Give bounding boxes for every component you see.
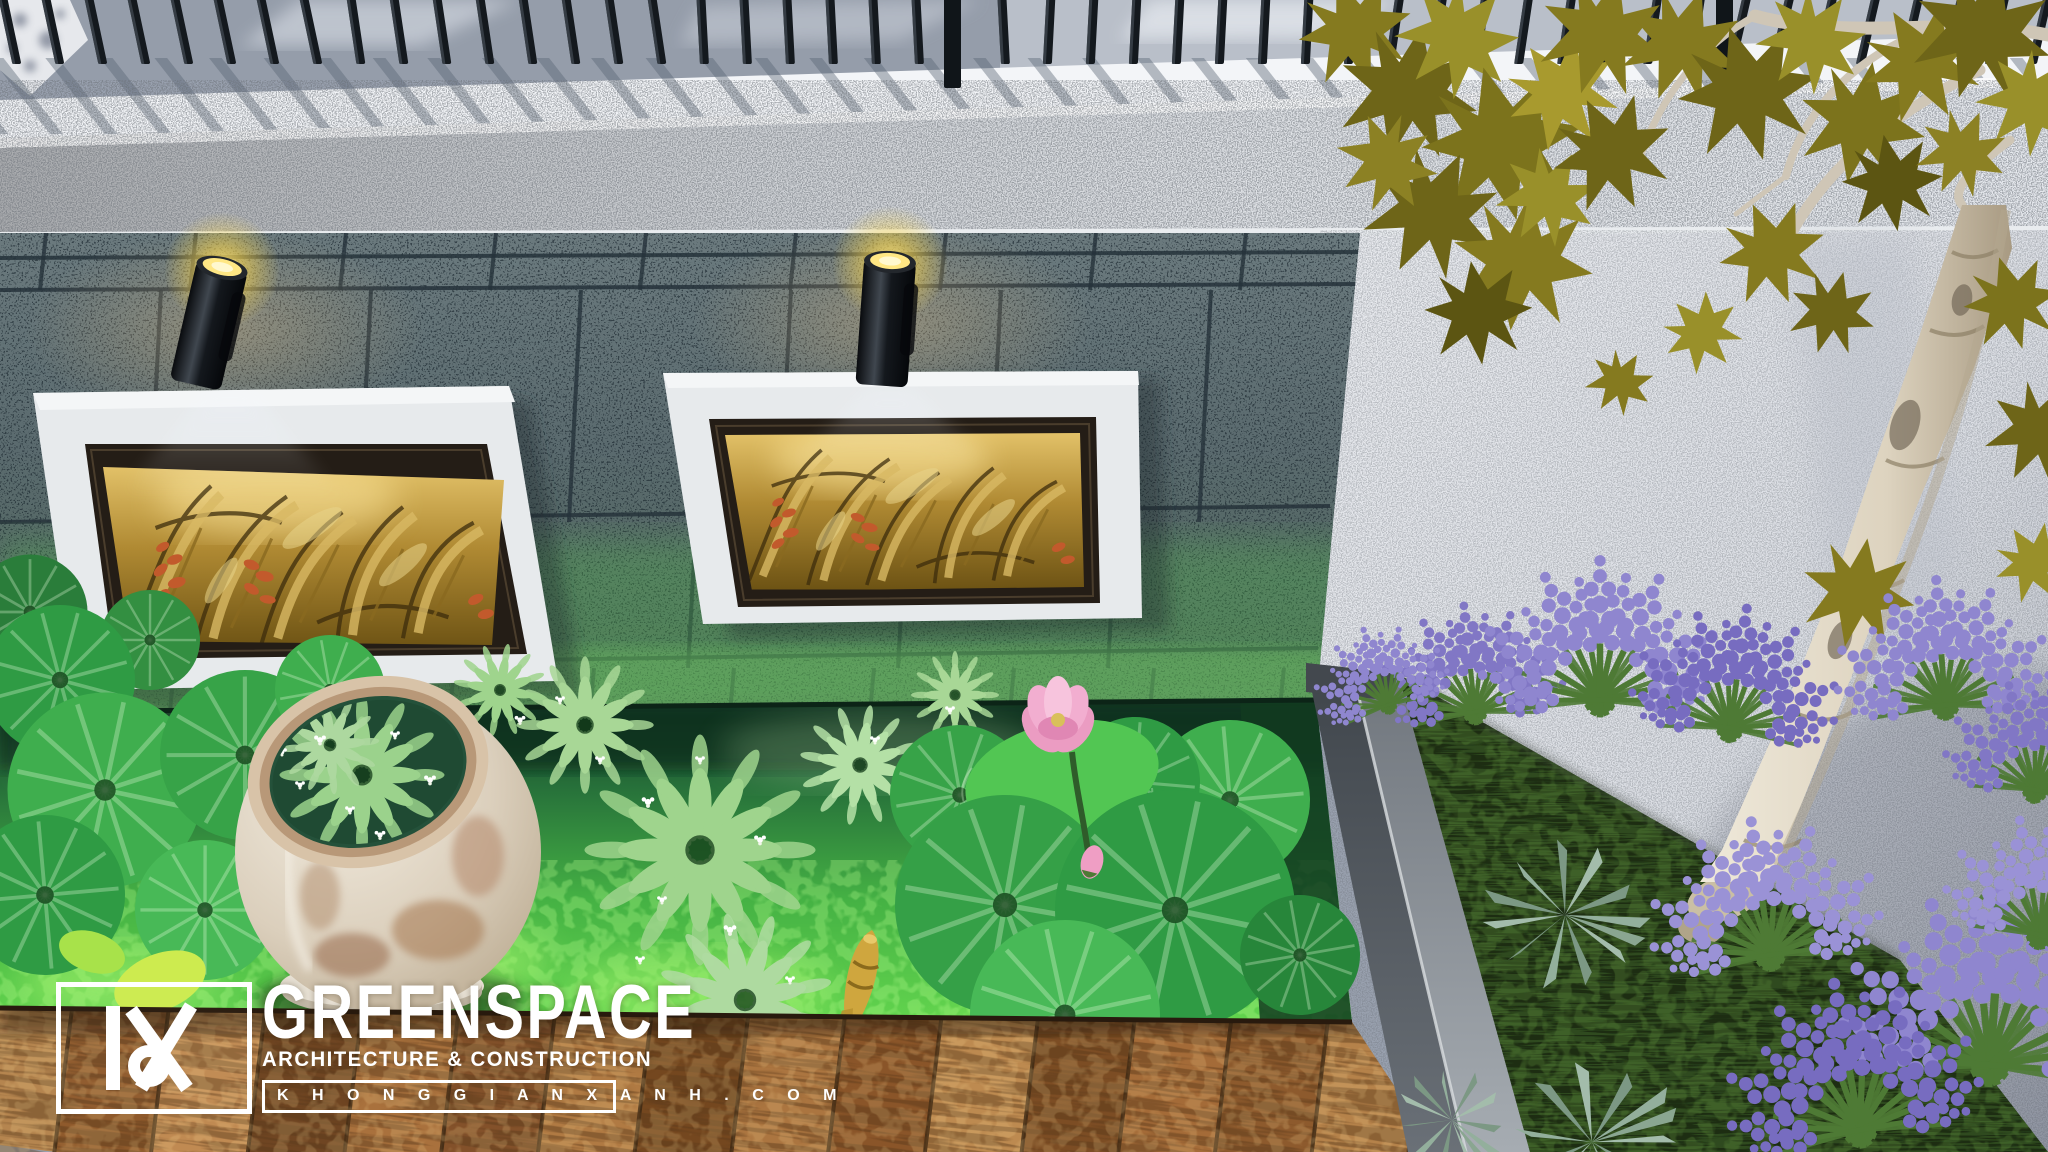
brand-monogram <box>56 982 252 1114</box>
website-box: K H O N G G I A N X A N H . C O M <box>262 1080 616 1113</box>
architectural-render: GREENSPACE ARCHITECTURE & CONSTRUCTION K… <box>0 0 2048 1152</box>
watermark-logo: GREENSPACE ARCHITECTURE & CONSTRUCTION K… <box>56 982 818 1114</box>
railing-post <box>944 0 961 88</box>
brand-name: GREENSPACE <box>262 982 696 1044</box>
brand-tagline: ARCHITECTURE & CONSTRUCTION <box>262 1048 802 1072</box>
wall-artwork-2 <box>663 371 1170 638</box>
website-url: K H O N G G I A N X A N H . C O M <box>277 1087 846 1104</box>
monogram-kx-icon <box>79 998 229 1098</box>
